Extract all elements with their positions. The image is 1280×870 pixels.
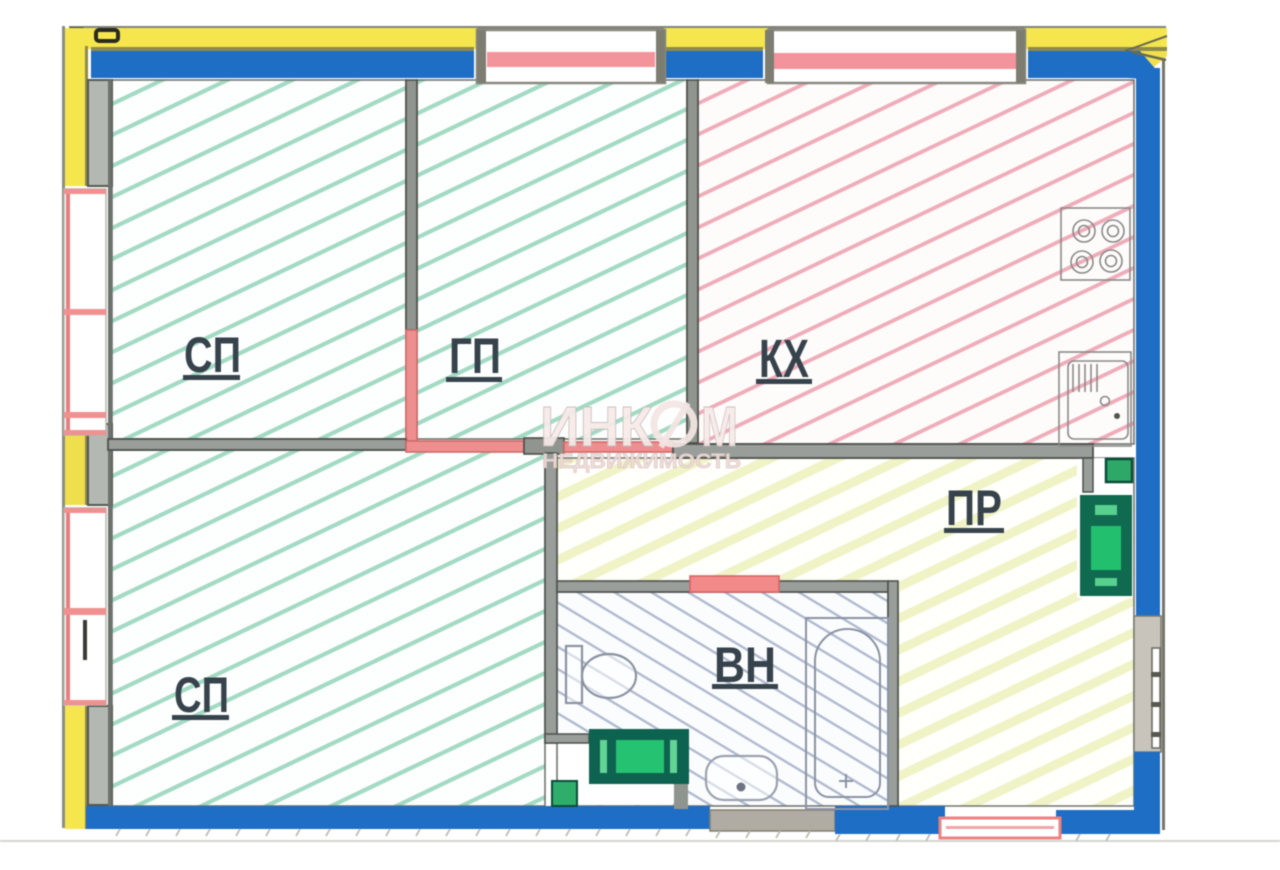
svg-text:НЕДВИЖИМОСТЬ: НЕДВИЖИМОСТЬ: [542, 450, 741, 473]
svg-text:ПР: ПР: [946, 480, 1002, 536]
svg-text:ГП: ГП: [449, 328, 501, 384]
svg-text:СП: СП: [174, 667, 229, 723]
svg-text:СП: СП: [184, 327, 241, 383]
